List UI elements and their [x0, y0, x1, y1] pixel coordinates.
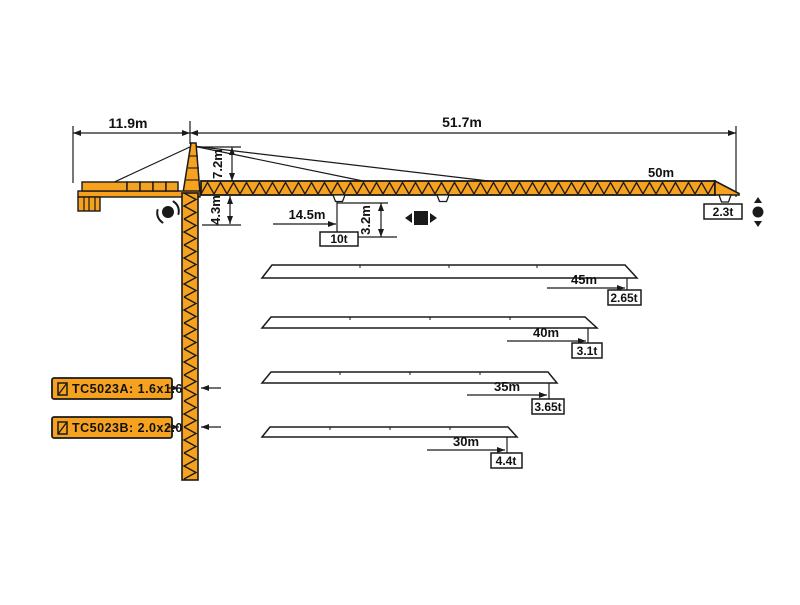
jib-45m-length: 45m — [571, 272, 597, 287]
trolley-travel-icon — [405, 211, 437, 225]
hook-travel-icon — [753, 197, 764, 227]
dim-jib-to-mark-label: 4.3m — [208, 195, 223, 225]
dim-main-jib-span-label: 51.7m — [442, 114, 482, 130]
counter-jib-segment — [153, 182, 166, 191]
max-capacity-label: 10t — [330, 232, 347, 246]
jib-45m-tip-load: 2.65t — [610, 291, 637, 305]
jib-hanger-tip — [719, 195, 731, 202]
main-jib-lattice — [201, 181, 715, 195]
crane-diagram-canvas: 11.9m 51.7m 7.2m — [0, 0, 800, 600]
jib-35m-tip-load: 3.65t — [534, 400, 561, 414]
tip-load-50m: 2.3t — [713, 205, 734, 219]
counter-jib-segment — [127, 182, 140, 191]
slewing-rotation-icon — [157, 202, 179, 223]
jib-hanger-inner — [333, 195, 345, 202]
tower-head — [183, 143, 200, 193]
tie-rods — [110, 146, 497, 184]
counter-jib-segment — [82, 182, 127, 191]
tower-mast — [182, 193, 198, 480]
dim-radius-label: 14.5m — [289, 207, 326, 222]
jib-40m-length: 40m — [533, 325, 559, 340]
crane-specification-diagram: 11.9m 51.7m 7.2m — [0, 0, 800, 600]
jib-hanger-middle — [437, 195, 449, 202]
main-jib — [201, 181, 739, 202]
dim-hook-drop-label: 3.2m — [358, 205, 373, 235]
dim-counter-jib-label: 11.9m — [109, 115, 148, 131]
jib-35m-length: 35m — [494, 379, 520, 394]
counter-jib-segment — [140, 182, 153, 191]
tie-rod-counter-jib — [110, 146, 192, 184]
model-b-label: TC5023B: 2.0x2.0 — [72, 421, 183, 435]
jib-30m-tip-load: 4.4t — [496, 454, 517, 468]
counter-jib-segment — [166, 182, 178, 191]
jib-30m-length: 30m — [453, 434, 479, 449]
dim-tower-head-label: 7.2m — [210, 149, 225, 179]
jib-40m-tip-load: 3.1t — [577, 344, 598, 358]
jib-variant-30m — [262, 427, 522, 468]
main-jib-length-label: 50m — [648, 165, 674, 180]
model-a-label: TC5023A: 1.6x1.6 — [72, 382, 183, 396]
tie-rod-jib-outer — [193, 146, 497, 182]
